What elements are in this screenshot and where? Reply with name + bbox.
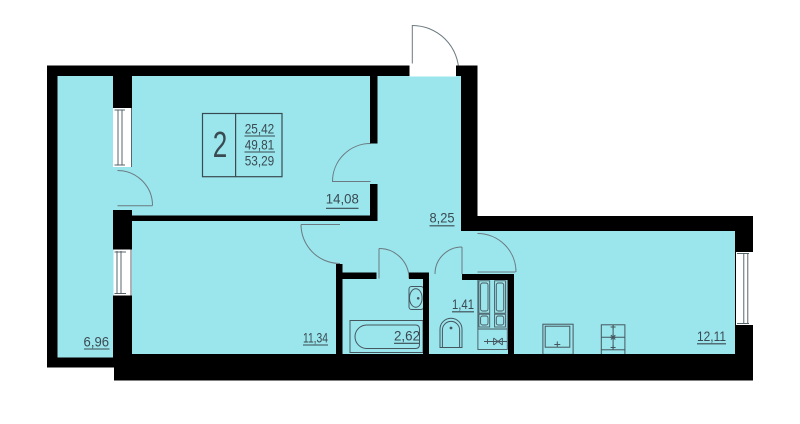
svg-text:49,81: 49,81 bbox=[245, 138, 275, 153]
svg-text:14,08: 14,08 bbox=[326, 191, 359, 207]
svg-text:2,62: 2,62 bbox=[394, 328, 420, 344]
svg-text:11,34: 11,34 bbox=[303, 330, 328, 346]
svg-text:8,25: 8,25 bbox=[430, 210, 455, 226]
svg-text:53,29: 53,29 bbox=[245, 153, 275, 168]
svg-text:12,11: 12,11 bbox=[697, 328, 726, 344]
svg-text:1,41: 1,41 bbox=[452, 296, 474, 312]
svg-text:2: 2 bbox=[213, 124, 228, 165]
svg-text:25,42: 25,42 bbox=[245, 121, 275, 136]
svg-text:6,96: 6,96 bbox=[84, 334, 110, 350]
